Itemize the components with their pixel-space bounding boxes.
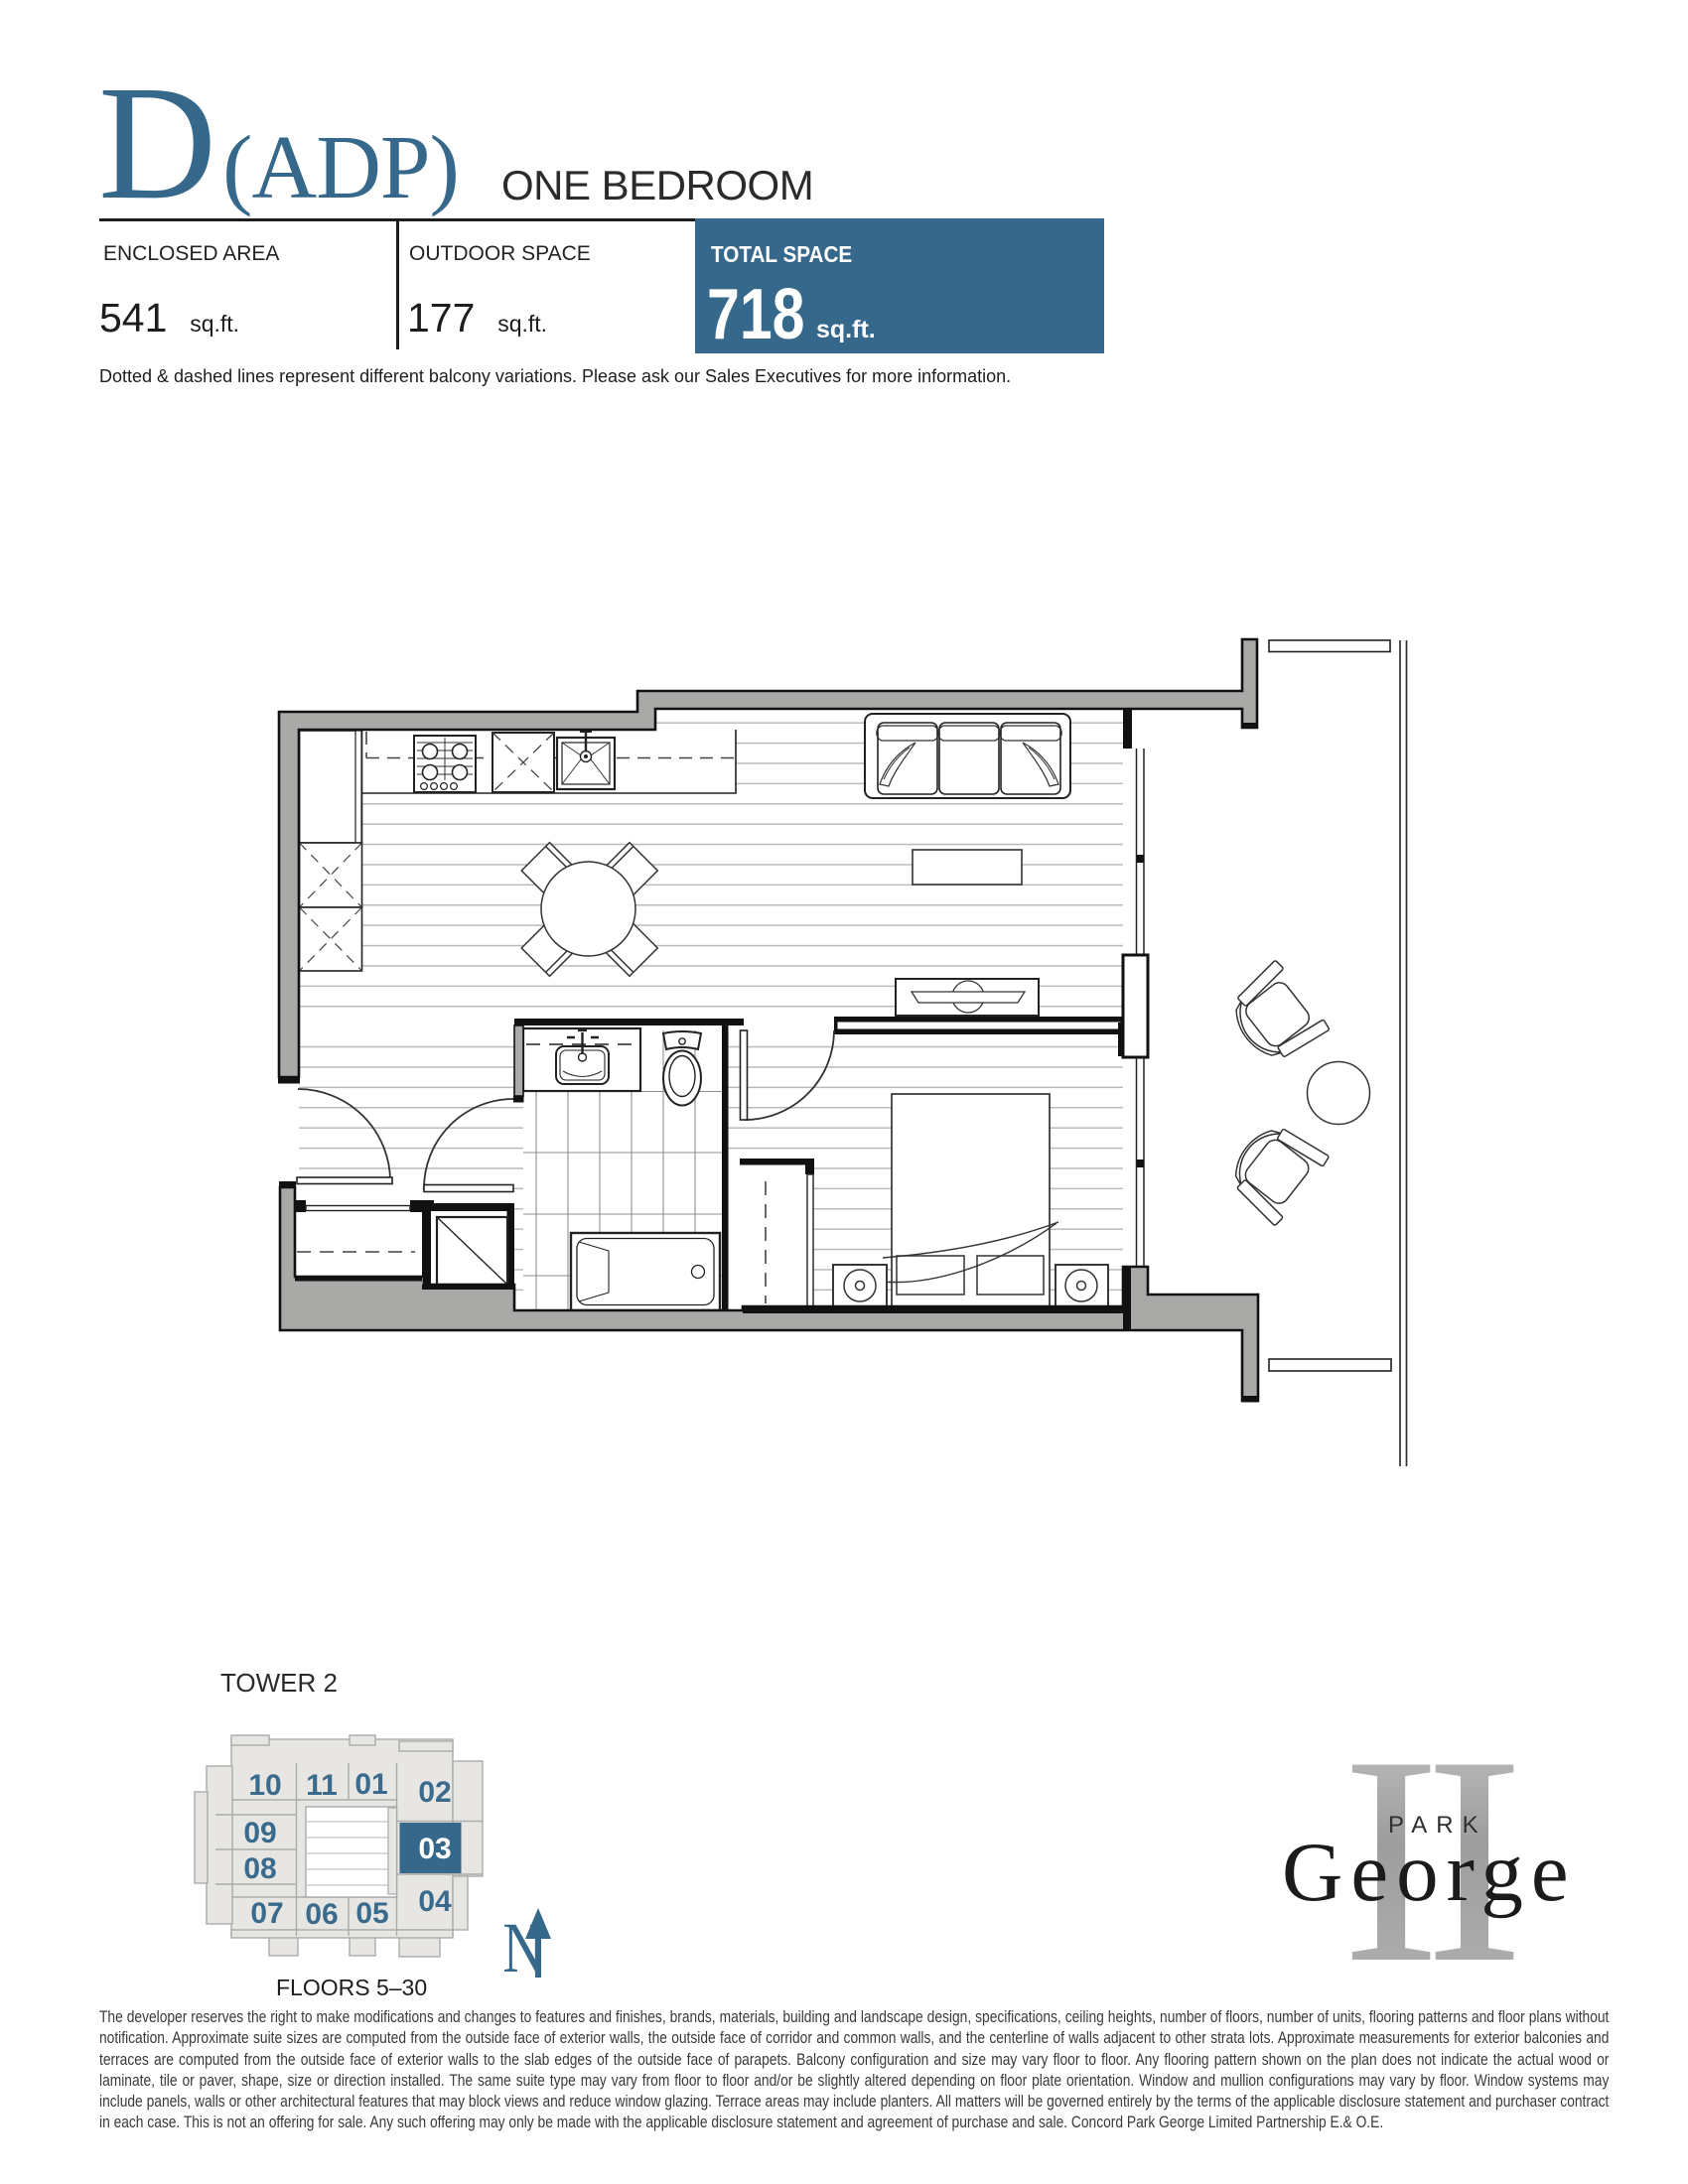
svg-text:06: 06 [305, 1898, 338, 1931]
svg-text:07: 07 [250, 1897, 283, 1930]
svg-text:01: 01 [354, 1768, 387, 1801]
svg-text:09: 09 [243, 1817, 276, 1849]
svg-text:08: 08 [243, 1852, 276, 1885]
svg-text:10: 10 [248, 1769, 281, 1802]
svg-text:02: 02 [418, 1776, 451, 1809]
svg-text:11: 11 [306, 1769, 338, 1802]
svg-text:03: 03 [418, 1833, 451, 1865]
svg-text:04: 04 [418, 1885, 452, 1918]
svg-text:05: 05 [355, 1897, 388, 1930]
